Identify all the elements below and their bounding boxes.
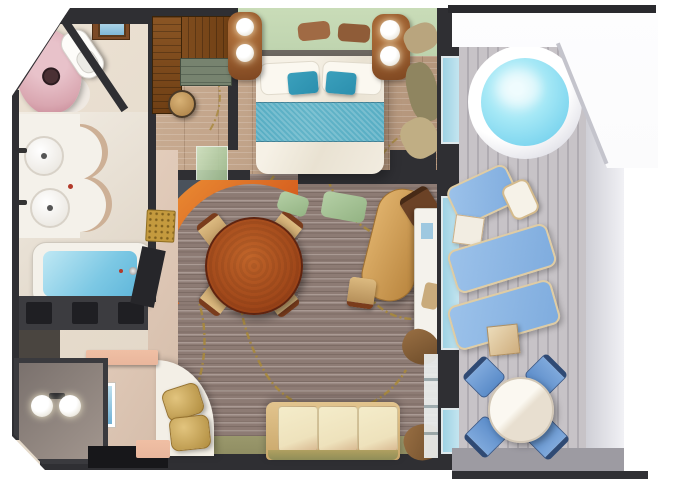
table-lamp-left-2 (236, 44, 254, 62)
globe-wall-lamp-2 (59, 395, 81, 417)
oval-table-chair (346, 276, 377, 309)
shelf-slot-3 (118, 302, 144, 324)
sink-basin-2 (30, 188, 70, 228)
sink-drain-1 (41, 153, 47, 159)
soap-accent (68, 184, 73, 189)
sofa-base (268, 450, 398, 460)
balcony-top-wall (448, 5, 656, 13)
sofa-cushion-3 (358, 406, 398, 452)
closet-drawer-cabinet (180, 58, 232, 86)
balcony (452, 5, 662, 477)
sink-basin-1 (24, 136, 64, 176)
table-lamp-left-1 (236, 18, 254, 36)
hot-tub-swirl (497, 70, 541, 107)
desk-paper (421, 223, 433, 239)
teal-pillow-right (325, 71, 357, 96)
sofa-cushion-2 (318, 406, 358, 452)
round-balcony-table (488, 377, 554, 443)
bathtub-accent (119, 269, 123, 273)
shelf-slot-2 (72, 302, 98, 324)
table-lamp-right-1 (380, 20, 400, 40)
gold-cushion-2 (168, 414, 211, 452)
floor-plan-canvas (0, 0, 680, 486)
side-table-wood (487, 323, 521, 356)
shelf-slot-1 (26, 302, 52, 324)
sofa-cushion-1 (278, 406, 318, 452)
shower-drain (40, 65, 63, 88)
closet-stool (168, 90, 196, 118)
shelf-cushion-2 (337, 23, 370, 43)
teal-bed-runner (256, 102, 384, 142)
sink-drain-2 (47, 205, 53, 211)
teal-pillow-left (287, 71, 319, 96)
sofa (266, 402, 400, 460)
towel-shelves (16, 296, 148, 330)
closet-glass-door (196, 146, 228, 182)
bathtub-water (43, 251, 137, 297)
console-table-lower (136, 440, 170, 458)
round-dining-table (205, 217, 303, 315)
globe-wall-lamp-1 (31, 395, 53, 417)
gold-ottoman (145, 209, 176, 242)
shelf-cushion-1 (297, 20, 331, 41)
table-lamp-right-2 (380, 46, 400, 66)
balcony-bottom-wall (452, 471, 648, 479)
hot-tub-water (481, 58, 569, 146)
balcony-door-frame (424, 354, 438, 458)
